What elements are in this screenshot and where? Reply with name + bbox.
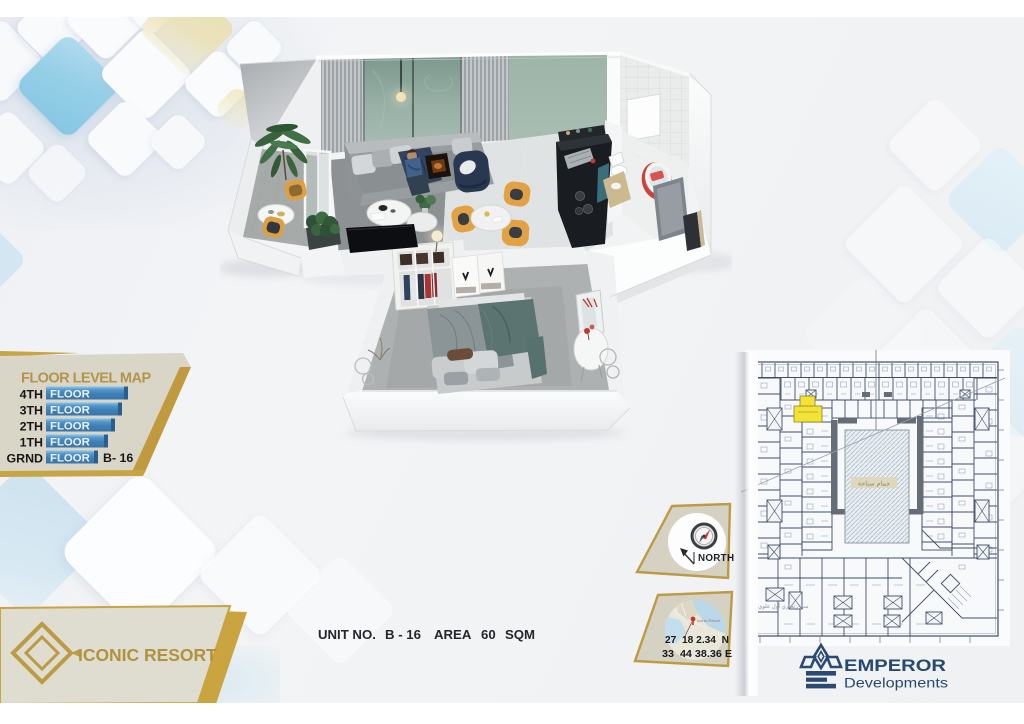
svg-text:FLOOR: FLOOR [50, 437, 90, 449]
svg-text:Developments: Developments [844, 676, 948, 692]
svg-text:NORTH: NORTH [698, 553, 734, 564]
svg-text:2TH: 2TH [20, 420, 43, 434]
svg-text:FLOOR: FLOOR [50, 453, 90, 465]
svg-text:FLOOR: FLOOR [50, 421, 90, 433]
svg-text:GRND: GRND [7, 452, 44, 466]
svg-text:33 44 38.36 E: 33 44 38.36 E [662, 649, 732, 660]
svg-text:Iconic Resort: Iconic Resort [697, 618, 721, 623]
svg-text:4TH: 4TH [20, 388, 43, 402]
svg-text:B- 16: B- 16 [103, 451, 133, 465]
svg-text:حمام سباحة: حمام سباحة [858, 480, 890, 488]
svg-text:FLOOR: FLOOR [50, 389, 90, 401]
svg-text:FLOOR LEVEL MAP: FLOOR LEVEL MAP [21, 371, 151, 387]
svg-text:FLOOR: FLOOR [50, 405, 90, 417]
svg-text:3TH: 3TH [20, 404, 43, 418]
svg-text:1TH: 1TH [20, 436, 43, 450]
svg-text:ICONIC RESORT: ICONIC RESORT [78, 645, 217, 665]
svg-text:EMPEROR: EMPEROR [844, 657, 946, 675]
